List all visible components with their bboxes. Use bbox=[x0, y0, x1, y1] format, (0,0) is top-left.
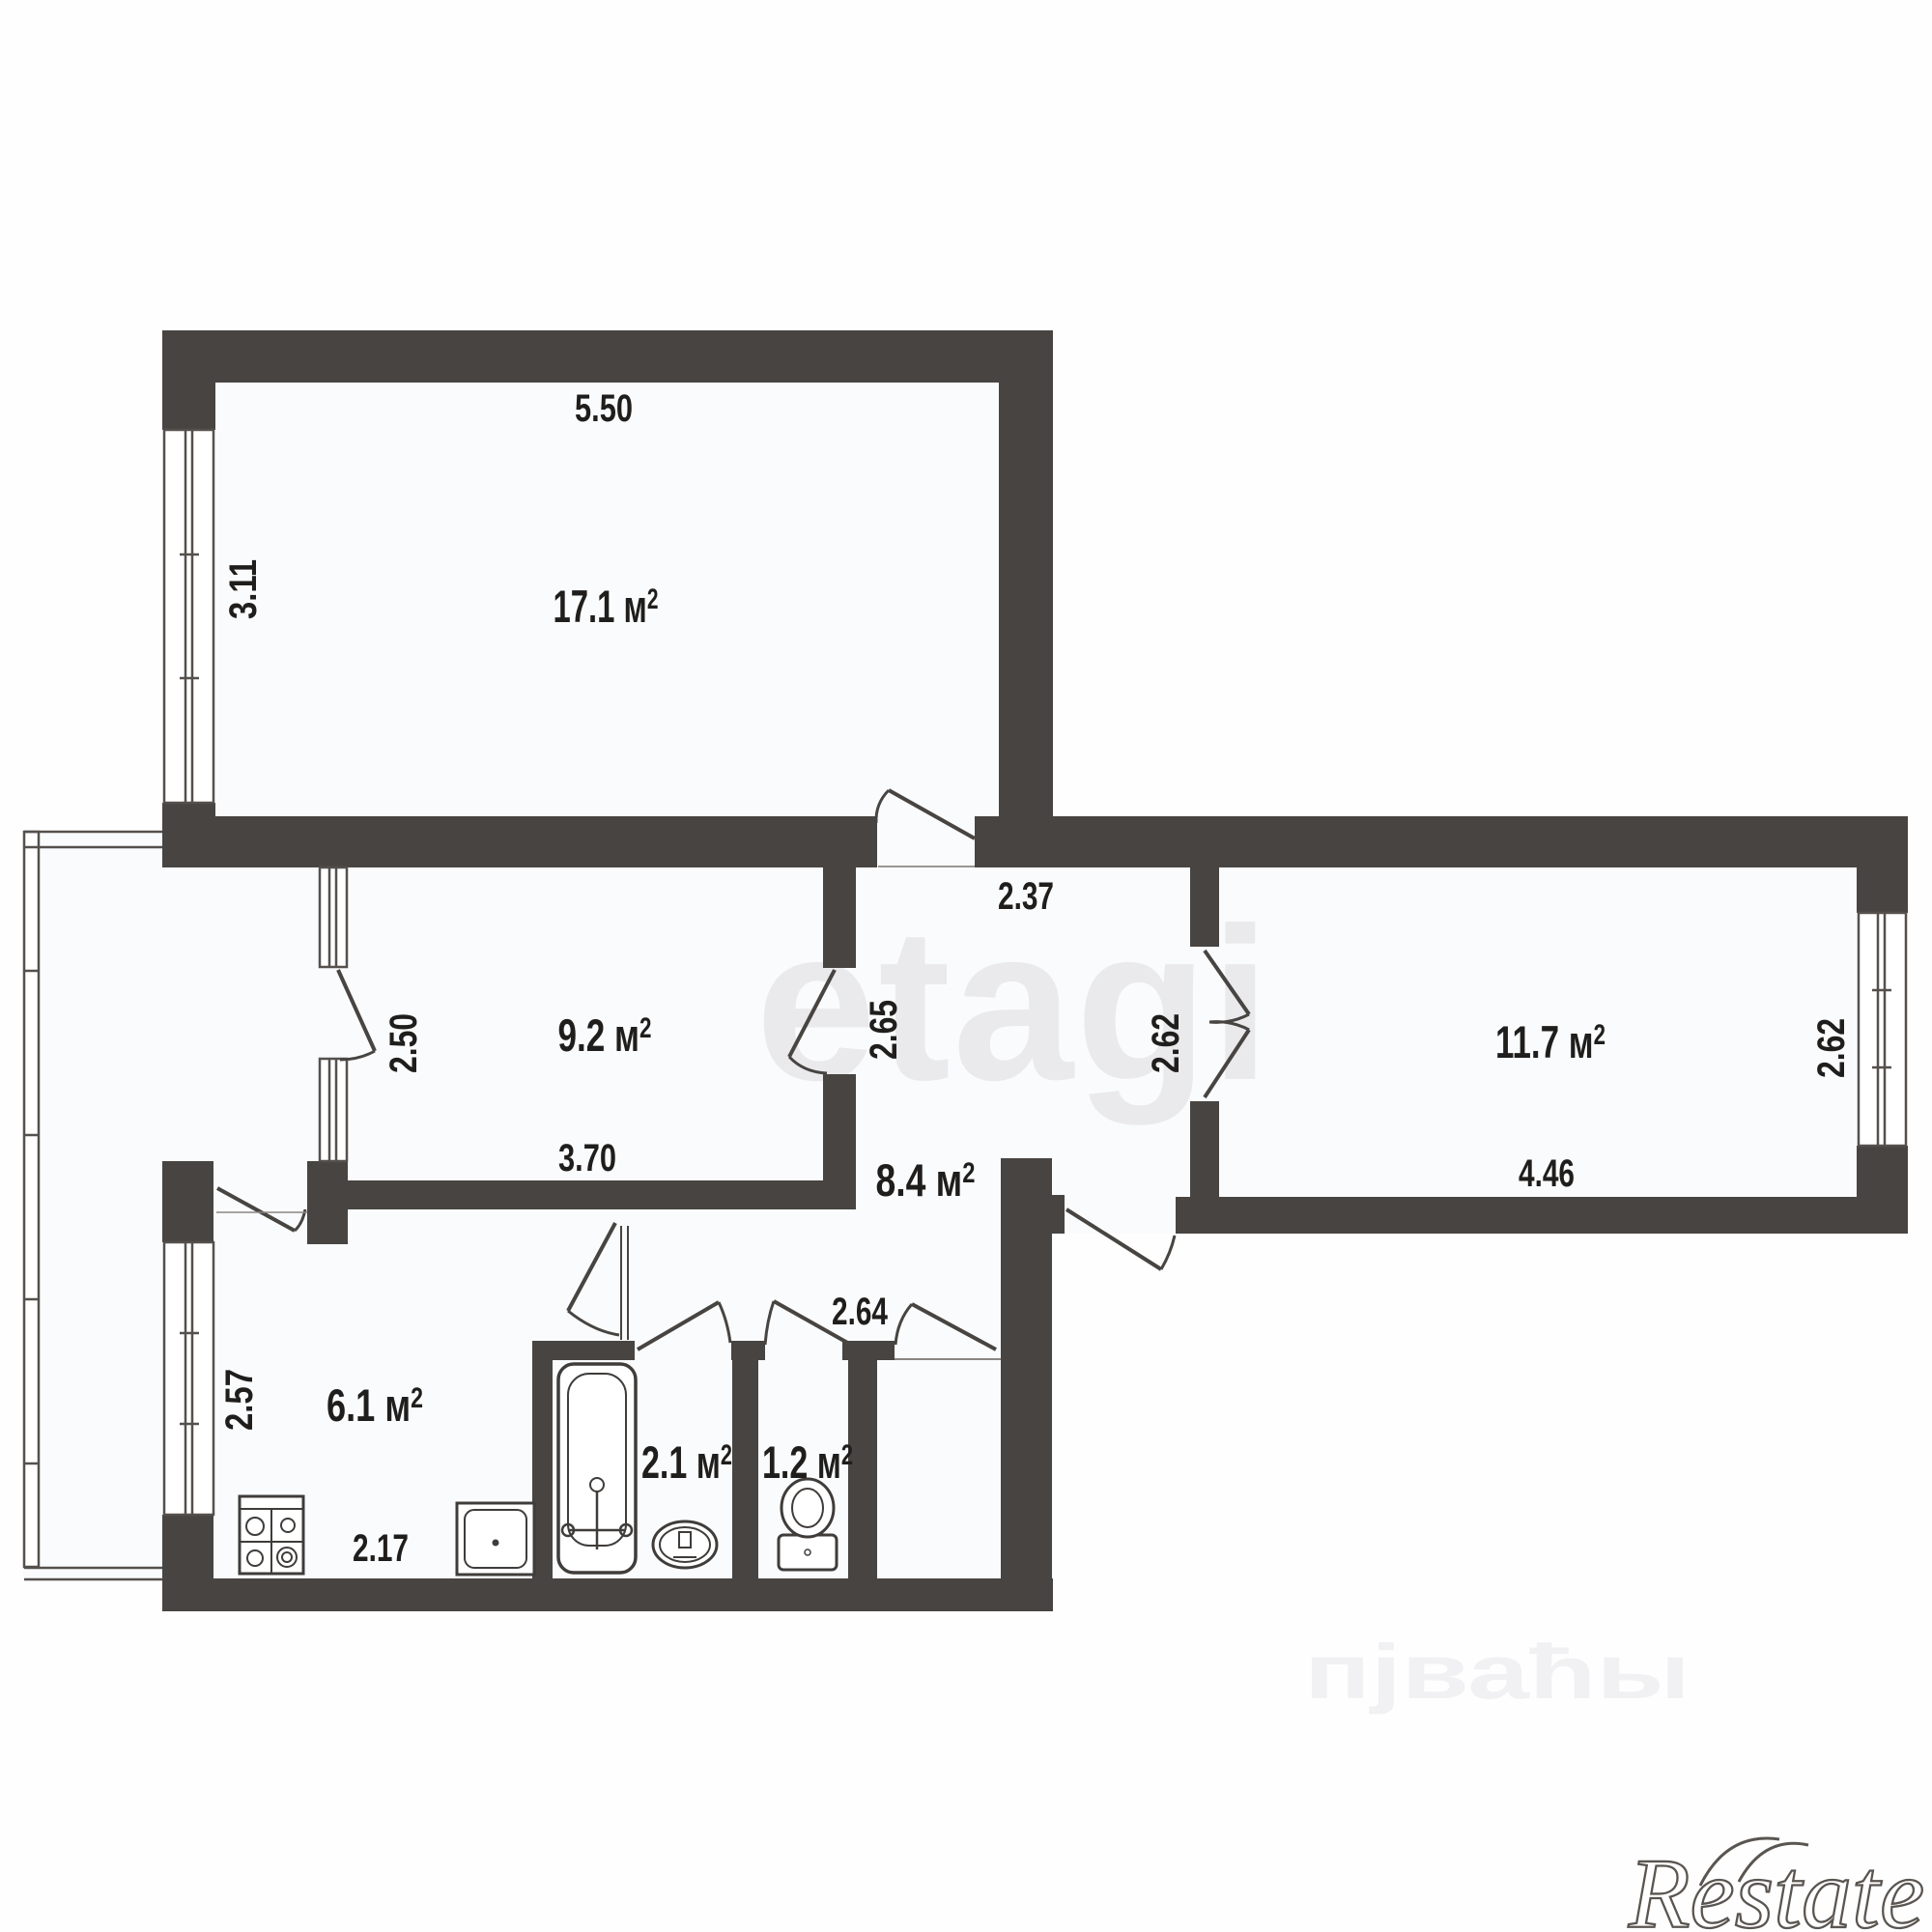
svg-text:11.7 м2: 11.7 м2 bbox=[1495, 1016, 1605, 1067]
svg-text:8.4 м2: 8.4 м2 bbox=[876, 1154, 976, 1206]
svg-text:2.62: 2.62 bbox=[1145, 1013, 1187, 1073]
svg-text:2.62: 2.62 bbox=[1810, 1018, 1853, 1078]
svg-text:6.1 м2: 6.1 м2 bbox=[327, 1379, 423, 1431]
svg-text:2.17: 2.17 bbox=[353, 1527, 409, 1570]
svg-text:2.37: 2.37 bbox=[998, 875, 1054, 918]
svg-text:2.50: 2.50 bbox=[383, 1013, 425, 1073]
svg-text:1.2 м2: 1.2 м2 bbox=[762, 1436, 853, 1488]
svg-text:пјваћы: пјваћы bbox=[1304, 1629, 1690, 1715]
svg-text:2.57: 2.57 bbox=[218, 1369, 261, 1431]
svg-text:4.46: 4.46 bbox=[1519, 1152, 1575, 1195]
svg-text:Restate: Restate bbox=[1628, 1838, 1924, 1932]
svg-text:17.1 м2: 17.1 м2 bbox=[554, 581, 659, 632]
svg-text:5.50: 5.50 bbox=[575, 387, 633, 430]
svg-text:2.64: 2.64 bbox=[832, 1291, 889, 1333]
svg-text:2.65: 2.65 bbox=[863, 1000, 905, 1060]
svg-text:9.2 м2: 9.2 м2 bbox=[558, 1009, 652, 1061]
svg-text:2.1 м2: 2.1 м2 bbox=[641, 1436, 732, 1488]
svg-text:3.70: 3.70 bbox=[558, 1137, 616, 1179]
svg-text:3.11: 3.11 bbox=[222, 559, 265, 619]
